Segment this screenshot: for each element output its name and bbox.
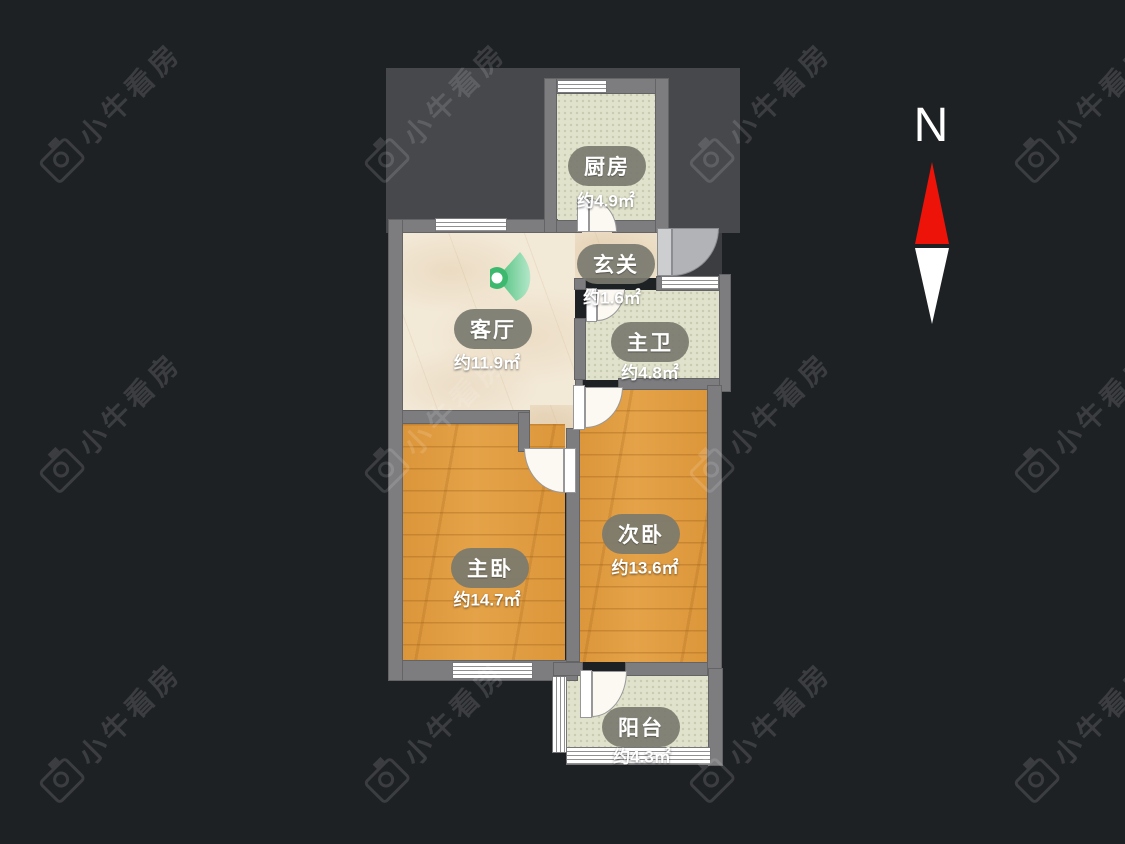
panorama-fan-icon bbox=[490, 248, 536, 304]
wall bbox=[544, 78, 557, 233]
room-area-balcony: 约4.3㎡ bbox=[613, 743, 671, 768]
camera-icon bbox=[37, 446, 86, 495]
camera-icon bbox=[37, 136, 86, 185]
master-bed-door-leaf bbox=[564, 448, 576, 493]
wall bbox=[719, 274, 731, 392]
wall bbox=[398, 410, 530, 424]
watermark: 小牛看房 bbox=[983, 316, 1125, 524]
room-label-balcony: 阳台 bbox=[602, 707, 680, 747]
watermark: 小牛看房 bbox=[8, 626, 216, 834]
room-label-living: 客厅 bbox=[454, 309, 532, 349]
watermark: 小牛看房 bbox=[8, 6, 216, 214]
entrance-door-leaf bbox=[657, 228, 672, 276]
panorama-camera-marker bbox=[490, 248, 536, 304]
room-area-master-bath: 约4.8㎡ bbox=[621, 359, 679, 384]
master-bath-window bbox=[661, 276, 719, 290]
room-label-master-bed: 主卧 bbox=[451, 548, 529, 588]
north-arrow-icon bbox=[911, 158, 953, 326]
camera-icon bbox=[362, 756, 411, 805]
room-label-second-bed: 次卧 bbox=[602, 514, 680, 554]
wall bbox=[518, 412, 530, 452]
room-area-hallway: 约1.6㎡ bbox=[583, 284, 641, 309]
camera-icon bbox=[1012, 446, 1061, 495]
balcony-door-leaf bbox=[580, 670, 592, 718]
camera-icon bbox=[1012, 136, 1061, 185]
second-bed-door-leaf bbox=[573, 385, 585, 430]
camera-icon bbox=[37, 756, 86, 805]
room-label-master-bath: 主卫 bbox=[611, 322, 689, 362]
wall bbox=[574, 318, 586, 380]
compass-north-label: N bbox=[914, 102, 949, 150]
room-area-living: 约11.9㎡ bbox=[454, 349, 520, 374]
watermark: 小牛看房 bbox=[983, 6, 1125, 214]
living-room-window bbox=[435, 218, 507, 232]
floorplan-screen: 厨房 约4.9㎡ 玄关 约1.6㎡ 客厅 约11.9㎡ 主卫 约4.8㎡ 主卧 … bbox=[0, 0, 1125, 844]
wall bbox=[707, 385, 722, 676]
camera-icon bbox=[1012, 756, 1061, 805]
watermark: 小牛看房 bbox=[983, 626, 1125, 834]
room-label-kitchen: 厨房 bbox=[568, 146, 646, 186]
balcony-side-window bbox=[552, 676, 567, 753]
wall bbox=[655, 78, 669, 233]
master-bed-window bbox=[452, 662, 533, 679]
room-label-hallway: 玄关 bbox=[577, 244, 655, 284]
wall bbox=[388, 219, 403, 681]
room-area-second-bed: 约13.6㎡ bbox=[611, 554, 678, 579]
room-area-kitchen: 约4.9㎡ bbox=[577, 187, 635, 212]
wall bbox=[553, 662, 583, 676]
watermark: 小牛看房 bbox=[8, 316, 216, 524]
room-area-master-bed: 约14.7㎡ bbox=[453, 586, 520, 611]
kitchen-window bbox=[557, 80, 607, 93]
